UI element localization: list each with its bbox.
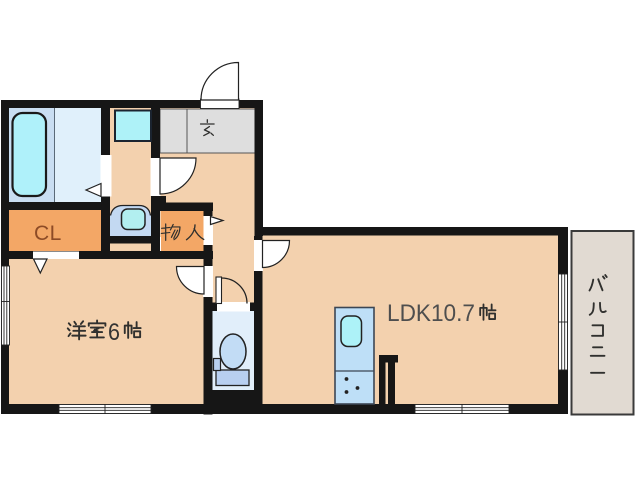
svg-text:LDK10.7: LDK10.7 — [387, 300, 475, 327]
svg-text:CL: CL — [34, 222, 62, 245]
svg-text:6: 6 — [108, 319, 120, 346]
